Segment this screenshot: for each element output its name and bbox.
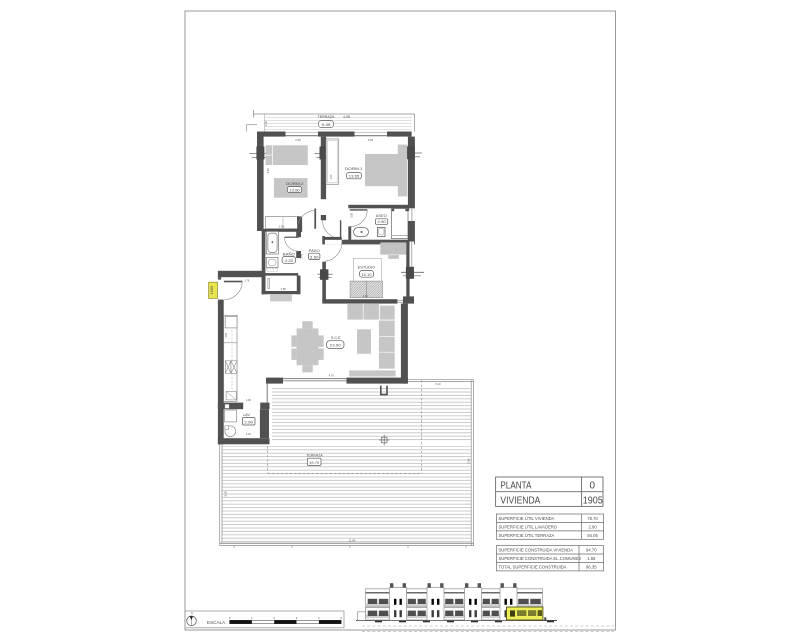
svg-text:2.50: 2.50 [363,294,369,298]
svg-text:LAV.: LAV. [243,413,251,417]
svg-text:SUPERFICIE ÚTIL TERRAZA: SUPERFICIE ÚTIL TERRAZA [499,533,555,538]
svg-text:2.90: 2.90 [589,524,598,529]
svg-text:3.60: 3.60 [310,255,319,259]
svg-text:2.88: 2.88 [466,458,470,464]
svg-text:4.05: 4.05 [266,168,270,174]
svg-text:TERRAZA: TERRAZA [306,453,323,457]
svg-text:SUPERFICIE CONSTRUIDA EL.COMUN: SUPERFICIE CONSTRUIDA EL.COMUNES [499,556,582,561]
svg-text:3.65: 3.65 [368,138,374,142]
svg-text:PASO: PASO [309,249,320,253]
svg-text:1.90: 1.90 [246,398,252,402]
svg-text:1905: 1905 [209,285,214,295]
svg-text:N: N [191,611,193,615]
svg-text:78.70: 78.70 [587,516,598,521]
svg-text:23.90: 23.90 [330,344,341,348]
svg-text:2.66: 2.66 [295,138,301,142]
svg-text:4.95: 4.95 [343,115,350,119]
svg-text:96.35: 96.35 [586,564,597,569]
svg-text:1.85: 1.85 [279,224,285,228]
svg-text:SUPERFICIE ÚTIL VIVIENDA: SUPERFICIE ÚTIL VIVIENDA [499,516,555,521]
svg-text:5.10: 5.10 [435,382,441,386]
svg-text:10.10: 10.10 [362,273,372,277]
svg-text:2.90: 2.90 [377,220,386,224]
svg-text:2.10: 2.10 [246,432,252,436]
svg-text:TOTAL SUPERFICIE CONSTRUIDA: TOTAL SUPERFICIE CONSTRUIDA [499,564,567,569]
svg-text:SUPERFICIE ÚTIL LAVADERO: SUPERFICIE ÚTIL LAVADERO [499,524,558,529]
svg-text:94.70: 94.70 [586,548,597,553]
svg-text:SUPERFICIE CONSTRUIDA VIVIENDA: SUPERFICIE CONSTRUIDA VIVIENDA [499,548,574,553]
svg-text:1.65: 1.65 [330,174,333,179]
svg-text:1.65: 1.65 [587,556,596,561]
svg-text:PLANTA: PLANTA [500,480,531,491]
svg-text:9.45: 9.45 [322,123,331,127]
svg-text:4.20: 4.20 [285,259,294,263]
svg-text:84.05: 84.05 [587,533,598,538]
svg-text:11.88: 11.88 [349,539,356,543]
svg-text:ESTUDIO: ESTUDIO [358,266,376,270]
svg-text:0: 0 [590,480,596,491]
svg-text:BAÑO: BAÑO [283,251,295,256]
svg-text:VIVIENDA: VIVIENDA [500,496,540,507]
svg-text:2.90: 2.90 [244,420,253,424]
svg-text:2.88: 2.88 [281,287,287,291]
svg-text:0.60: 0.60 [225,332,228,337]
svg-text:4.70: 4.70 [329,374,335,378]
svg-text:DORM.1: DORM.1 [345,166,363,171]
svg-text:13.65: 13.65 [349,175,360,179]
svg-text:S.C.E: S.C.E [331,336,341,340]
svg-text:ASEO: ASEO [376,214,387,218]
svg-text:DORM.2: DORM.2 [286,181,304,186]
svg-text:0.80: 0.80 [350,212,353,217]
svg-text:1.78: 1.78 [244,280,249,283]
svg-text:1905: 1905 [583,496,603,507]
svg-text:3.08: 3.08 [300,253,304,259]
svg-text:19.70: 19.70 [309,461,319,465]
svg-text:TERRAZA: TERRAZA [318,115,335,119]
svg-text:8.05: 8.05 [223,491,227,497]
svg-text:ESCALA :: ESCALA : [207,620,228,625]
svg-text:2.00: 2.00 [264,120,268,126]
svg-text:13.60: 13.60 [289,188,300,192]
